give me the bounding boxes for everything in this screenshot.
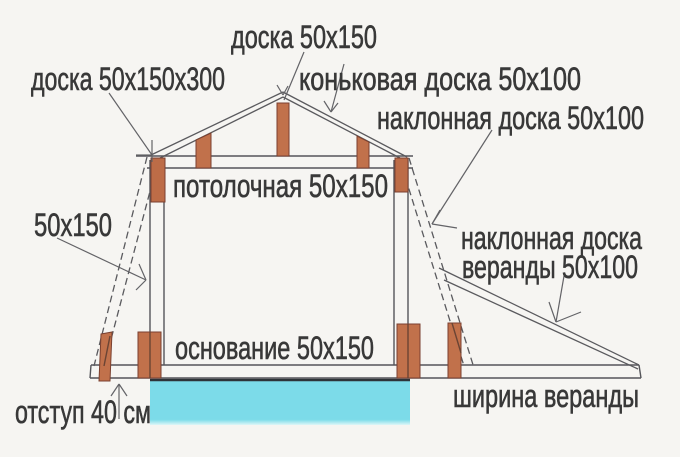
svg-text:доска 50х150х300: доска 50х150х300 — [31, 60, 225, 97]
svg-text:50х150: 50х150 — [34, 206, 112, 243]
svg-text:доска 50х150: доска 50х150 — [231, 18, 377, 55]
svg-text:веранды 50х100: веранды 50х100 — [462, 248, 638, 285]
svg-text:ширина веранды: ширина веранды — [453, 377, 639, 414]
svg-text:коньковая доска 50х100: коньковая доска 50х100 — [299, 60, 581, 97]
svg-text:наклонная доска 50х100: наклонная доска 50х100 — [377, 99, 644, 136]
svg-text:отступ 40 см: отступ 40 см — [15, 393, 151, 430]
svg-text:потолочная 50х150: потолочная 50х150 — [173, 167, 388, 204]
svg-text:основание 50х150: основание 50х150 — [175, 329, 374, 366]
